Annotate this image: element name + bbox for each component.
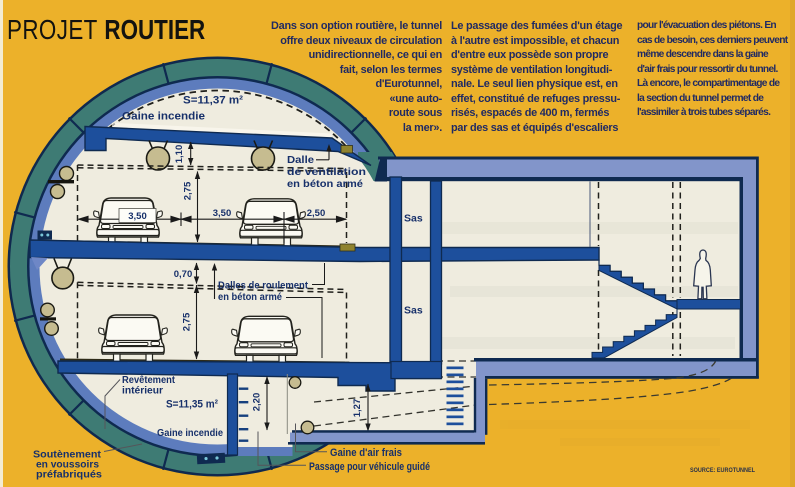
svg-text:2,75: 2,75 — [183, 181, 194, 200]
svg-text:préfabriqués: préfabriqués — [36, 469, 102, 481]
svg-text:S=11,35 m²: S=11,35 m² — [166, 399, 218, 411]
svg-text:intérieur: intérieur — [122, 385, 163, 397]
svg-text:en béton armé: en béton armé — [287, 178, 363, 190]
svg-text:Gaine d'air frais: Gaine d'air frais — [330, 447, 402, 459]
svg-text:SOURCE: EUROTUNNEL: SOURCE: EUROTUNNEL — [690, 467, 755, 474]
svg-text:Dalles de roulement: Dalles de roulement — [218, 280, 308, 292]
svg-text:de ventilation: de ventilation — [287, 166, 366, 178]
svg-text:3,50: 3,50 — [213, 208, 232, 219]
svg-text:2,75: 2,75 — [182, 312, 193, 331]
svg-text:2,50: 2,50 — [307, 208, 326, 219]
svg-text:Gaine incendie: Gaine incendie — [122, 111, 205, 123]
svg-text:1,27: 1,27 — [352, 399, 363, 418]
svg-text:Sas: Sas — [404, 305, 423, 317]
svg-text:2,20: 2,20 — [252, 393, 263, 412]
svg-text:Sas: Sas — [404, 213, 423, 225]
svg-text:3,50: 3,50 — [128, 211, 147, 222]
svg-text:1,10: 1,10 — [174, 145, 185, 164]
svg-text:S=11,37 m²: S=11,37 m² — [183, 95, 243, 107]
svg-text:0,70: 0,70 — [174, 269, 193, 280]
svg-text:Passage pour véhicule guidé: Passage pour véhicule guidé — [309, 461, 430, 473]
svg-text:en béton armé: en béton armé — [218, 291, 282, 303]
svg-text:Gaine incendie: Gaine incendie — [157, 427, 223, 439]
svg-text:Dalle: Dalle — [287, 154, 314, 166]
